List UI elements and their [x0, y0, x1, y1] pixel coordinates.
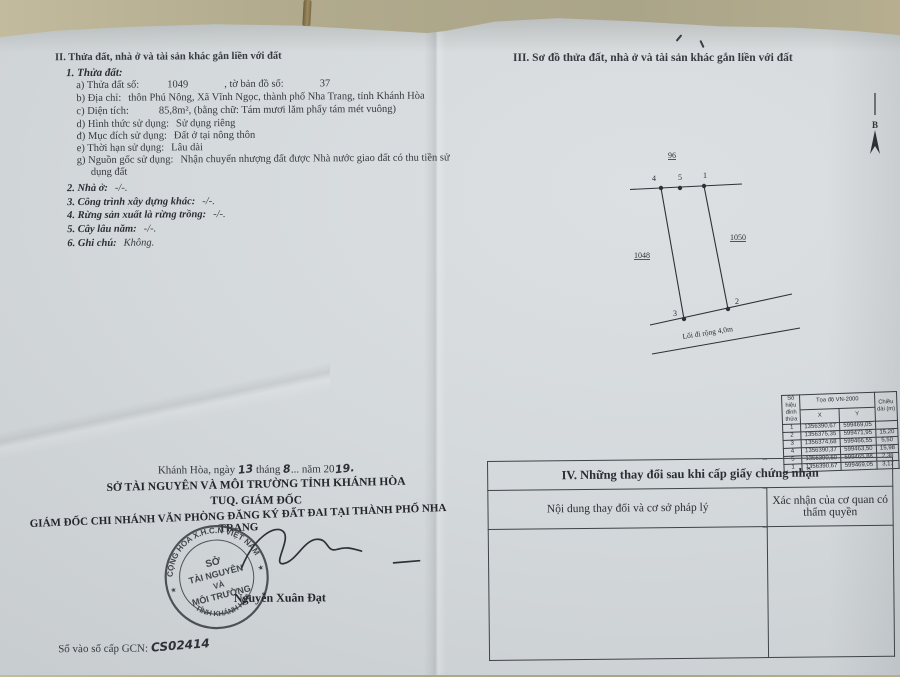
item-perennial-value: -/-. — [144, 224, 157, 235]
date-mid: tháng — [256, 464, 281, 476]
section3-title: III. Sơ đồ thửa đất, nhà ở và tài sản kh… — [513, 52, 793, 64]
use-purpose-value: Đất ở tại nông thôn — [174, 130, 255, 142]
area-value: 85,8m², (bằng chữ: Tám mươi lăm phẩy tám… — [159, 104, 396, 117]
item-note-label: 6. Ghi chú: — [67, 238, 116, 249]
use-form-label: d) Hình thức sử dụng: — [76, 118, 169, 130]
vertex-label-5: 5 — [678, 173, 682, 182]
section4-table: IV. Những thay đổi sau khi cấp giấy chứn… — [487, 457, 895, 661]
signer-name: Nguyễn Xuân Đạt — [234, 590, 326, 606]
use-form-value: Sử dụng riêng — [176, 118, 235, 129]
date-prefix: Khánh Hòa, ngày — [158, 464, 235, 477]
coord-header-y: Y — [839, 407, 876, 423]
origin-value2: dụng đất — [91, 167, 128, 178]
photo-background: II. Thửa đất, nhà ở và tài sản khác gắn … — [0, 0, 900, 675]
vertex-label-2: 2 — [735, 297, 739, 306]
adjacent-parcel-top: 96 — [668, 151, 676, 160]
section4-col1-header: Nội dung thay đổi và cơ sở pháp lý — [488, 488, 768, 530]
item-construction-value: -/-. — [202, 196, 215, 207]
item-perennial-label: 5. Cây lâu năm: — [67, 224, 137, 235]
item-note: 6. Ghi chú:Không. — [67, 238, 154, 250]
item-house: 2. Nhà ở:-/-. — [67, 183, 128, 194]
origin-label: g) Nguồn gốc sử dụng: — [77, 154, 174, 166]
map-sheet-label: , tờ bản đồ số: — [224, 79, 284, 90]
document-sheet: II. Thửa đất, nhà ở và tài sản khác gắn … — [0, 0, 900, 675]
gcn-value-handwritten: CS02414 — [150, 636, 210, 654]
origin-value1: Nhận chuyển nhượng đất được Nhà nước gia… — [180, 152, 449, 165]
use-purpose-line: đ) Mục đích sử dụng:Đất ở tại nông thôn — [77, 130, 256, 142]
origin-line2: dụng đất — [91, 167, 128, 178]
item-forest-value: -/-. — [213, 209, 226, 220]
address-value: thôn Phú Nông, Xã Vĩnh Ngọc, thành phố N… — [128, 91, 424, 104]
item-house-label: 2. Nhà ở: — [67, 183, 108, 194]
address-line: b) Địa chỉ:thôn Phú Nông, Xã Vĩnh Ngọc, … — [76, 91, 424, 104]
date-line: Khánh Hòa, ngày 13 tháng 8... năm 2019. — [121, 462, 391, 477]
use-purpose-label: đ) Mục đích sử dụng: — [77, 130, 167, 142]
use-form-line: d) Hình thức sử dụng:Sử dụng riêng — [76, 118, 235, 130]
use-term-label: e) Thời hạn sử dụng: — [77, 142, 165, 154]
area-line: c) Diện tích:85,8m², (bằng chữ: Tám mươi… — [76, 104, 396, 117]
gcn-label: Số vào sổ cấp GCN: — [58, 643, 148, 656]
parcel-diagram: B 4 5 1 2 3 — [480, 88, 900, 366]
item-construction-label: 3. Công trình xây dựng khác: — [67, 196, 195, 208]
section4-title: IV. Những thay đổi sau khi cấp giấy chứn… — [488, 457, 893, 490]
date-dots: ... — [291, 464, 299, 476]
area-label: c) Diện tích: — [76, 106, 129, 117]
parcel-number-label: a) Thửa đất số: — [76, 80, 139, 91]
coord-header-x: X — [800, 408, 839, 424]
adjacent-parcel-left: 1048 — [634, 251, 650, 260]
section2-title: II. Thửa đất, nhà ở và tài sản khác gắn … — [55, 51, 282, 64]
origin-line1: g) Nguồn gốc sử dụng:Nhận chuyển nhượng … — [77, 152, 450, 166]
section4-body-cell-right — [768, 525, 895, 657]
vertex-label-4: 4 — [652, 174, 656, 183]
coord-header-id: Số hiệu đỉnh thửa — [782, 395, 801, 425]
seal-star-left-icon: ★ — [170, 586, 178, 595]
date-suffix: năm 20 — [302, 463, 335, 475]
vertex-label-3: 3 — [673, 309, 677, 318]
section4-body-cell-left — [488, 527, 769, 661]
signature — [233, 518, 448, 589]
item-forest: 4. Rừng sản xuất là rừng trồng:-/-. — [67, 209, 226, 221]
address-label: b) Địa chỉ: — [76, 93, 121, 104]
section4-col2-header: Xác nhận của cơ quan có thẩm quyền — [767, 486, 893, 526]
north-label: B — [872, 120, 878, 130]
org-name: SỞ TÀI NGUYÊN VÀ MÔI TRƯỜNG TỈNH KHÁNH H… — [86, 475, 426, 494]
parcel-number-line: a) Thửa đất số:1049, tờ bản đồ số:37 — [76, 78, 330, 91]
parcel-number-value: 1049 — [167, 79, 188, 90]
use-term-line: e) Thời hạn sử dụng:Lâu dài — [77, 142, 203, 154]
item-construction: 3. Công trình xây dựng khác:-/-. — [67, 196, 215, 208]
date-day-handwritten: 13 — [237, 462, 254, 477]
date-month-handwritten: 8 — [282, 462, 291, 476]
coord-header-length: Chiều dài (m) — [875, 391, 898, 421]
pen-icon — [302, 0, 311, 26]
date-year-handwritten: 19. — [334, 461, 355, 476]
north-arrow-icon: B — [870, 93, 880, 154]
page-right: III. Sơ đồ thửa đất, nhà ở và tài sản kh… — [455, 0, 900, 675]
road-label: Lối đi rộng 4,0m — [682, 324, 734, 341]
item-house-value: -/-. — [115, 183, 128, 194]
parcel-heading: 1. Thửa đất: — [66, 67, 122, 79]
page-left: II. Thửa đất, nhà ở và tài sản khác gắn … — [0, 0, 462, 677]
item-perennial: 5. Cây lâu năm:-/-. — [67, 224, 156, 236]
adjacent-parcel-right: 1050 — [730, 233, 746, 242]
vertex-label-1: 1 — [703, 171, 707, 180]
item-forest-label: 4. Rừng sản xuất là rừng trồng: — [67, 209, 206, 221]
gcn-number-line: Số vào sổ cấp GCN: CS02414 — [58, 640, 209, 655]
map-sheet-value: 37 — [320, 78, 331, 89]
use-term-value: Lâu dài — [171, 142, 203, 153]
item-note-value: Không. — [124, 238, 155, 249]
